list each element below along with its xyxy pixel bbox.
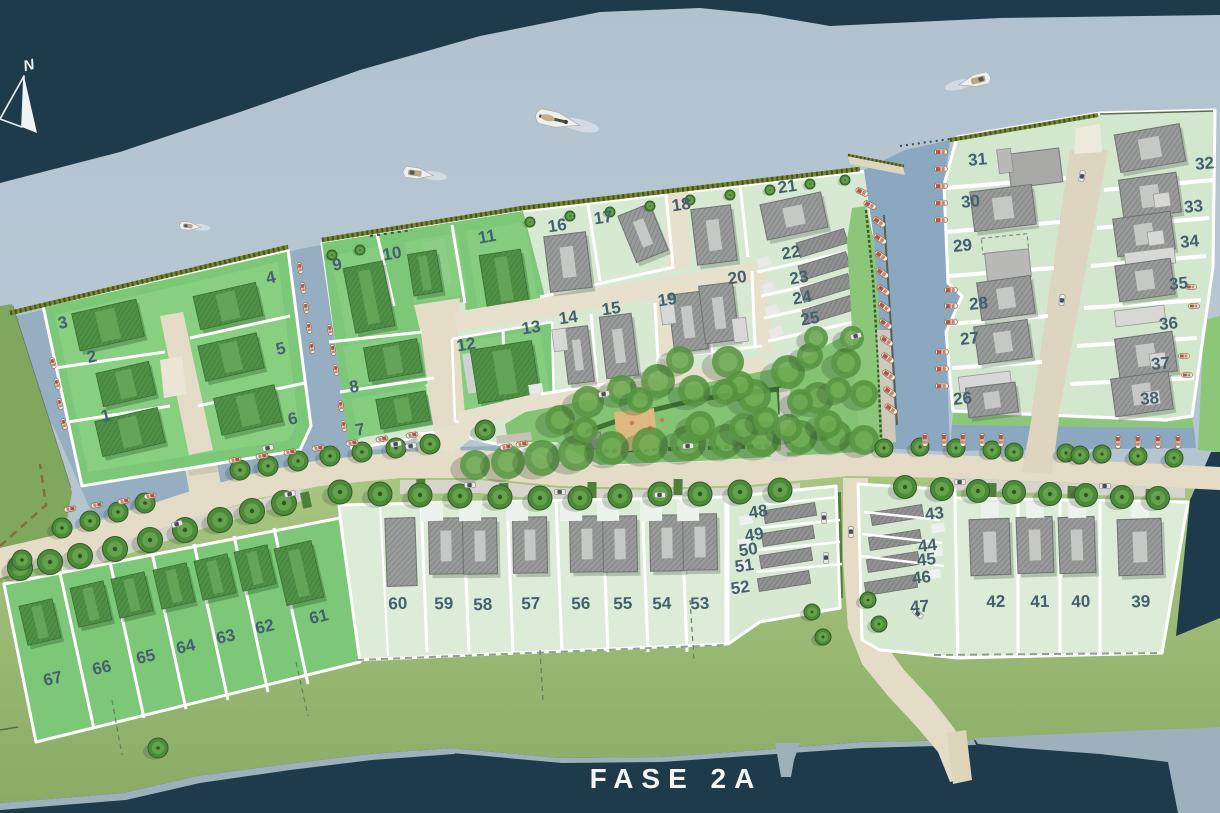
svg-text:51: 51 [734,555,755,576]
svg-text:33: 33 [1183,196,1204,217]
svg-text:59: 59 [434,594,454,614]
svg-text:11: 11 [477,226,498,248]
svg-text:42: 42 [986,592,1006,612]
svg-text:21: 21 [777,176,798,197]
svg-text:15: 15 [601,298,622,319]
svg-text:52: 52 [730,577,751,598]
svg-text:39: 39 [1131,592,1151,612]
svg-text:24: 24 [791,286,813,308]
svg-text:28: 28 [968,293,989,314]
svg-text:FASE 2A: FASE 2A [590,763,763,794]
svg-text:26: 26 [952,388,973,409]
svg-text:47: 47 [910,596,930,616]
svg-text:31: 31 [967,149,988,170]
svg-text:32: 32 [1194,153,1215,174]
svg-text:43: 43 [924,503,945,524]
svg-text:20: 20 [727,267,748,288]
svg-text:13: 13 [520,317,542,339]
svg-text:38: 38 [1139,388,1160,409]
svg-text:14: 14 [558,307,580,329]
svg-text:12: 12 [455,334,477,356]
svg-text:55: 55 [613,594,633,614]
svg-text:60: 60 [388,594,408,614]
svg-text:29: 29 [952,235,973,256]
svg-text:23: 23 [788,267,810,289]
svg-text:19: 19 [657,289,678,310]
svg-text:18: 18 [671,194,692,215]
svg-text:36: 36 [1158,313,1179,334]
svg-text:54: 54 [652,594,672,614]
svg-text:46: 46 [911,567,932,588]
svg-text:10: 10 [381,243,403,265]
svg-text:48: 48 [748,501,769,522]
svg-text:53: 53 [690,594,710,614]
svg-text:56: 56 [571,594,591,614]
svg-text:27: 27 [959,328,980,349]
svg-text:41: 41 [1030,592,1050,612]
svg-text:40: 40 [1071,592,1091,612]
svg-text:30: 30 [960,191,981,212]
svg-text:58: 58 [473,595,493,615]
svg-text:34: 34 [1179,231,1200,252]
svg-text:35: 35 [1168,273,1189,294]
svg-text:37: 37 [1150,353,1171,374]
svg-text:25: 25 [799,308,821,330]
svg-text:57: 57 [521,594,541,614]
svg-text:16: 16 [547,215,568,236]
svg-text:17: 17 [593,207,614,228]
svg-text:22: 22 [780,242,802,264]
